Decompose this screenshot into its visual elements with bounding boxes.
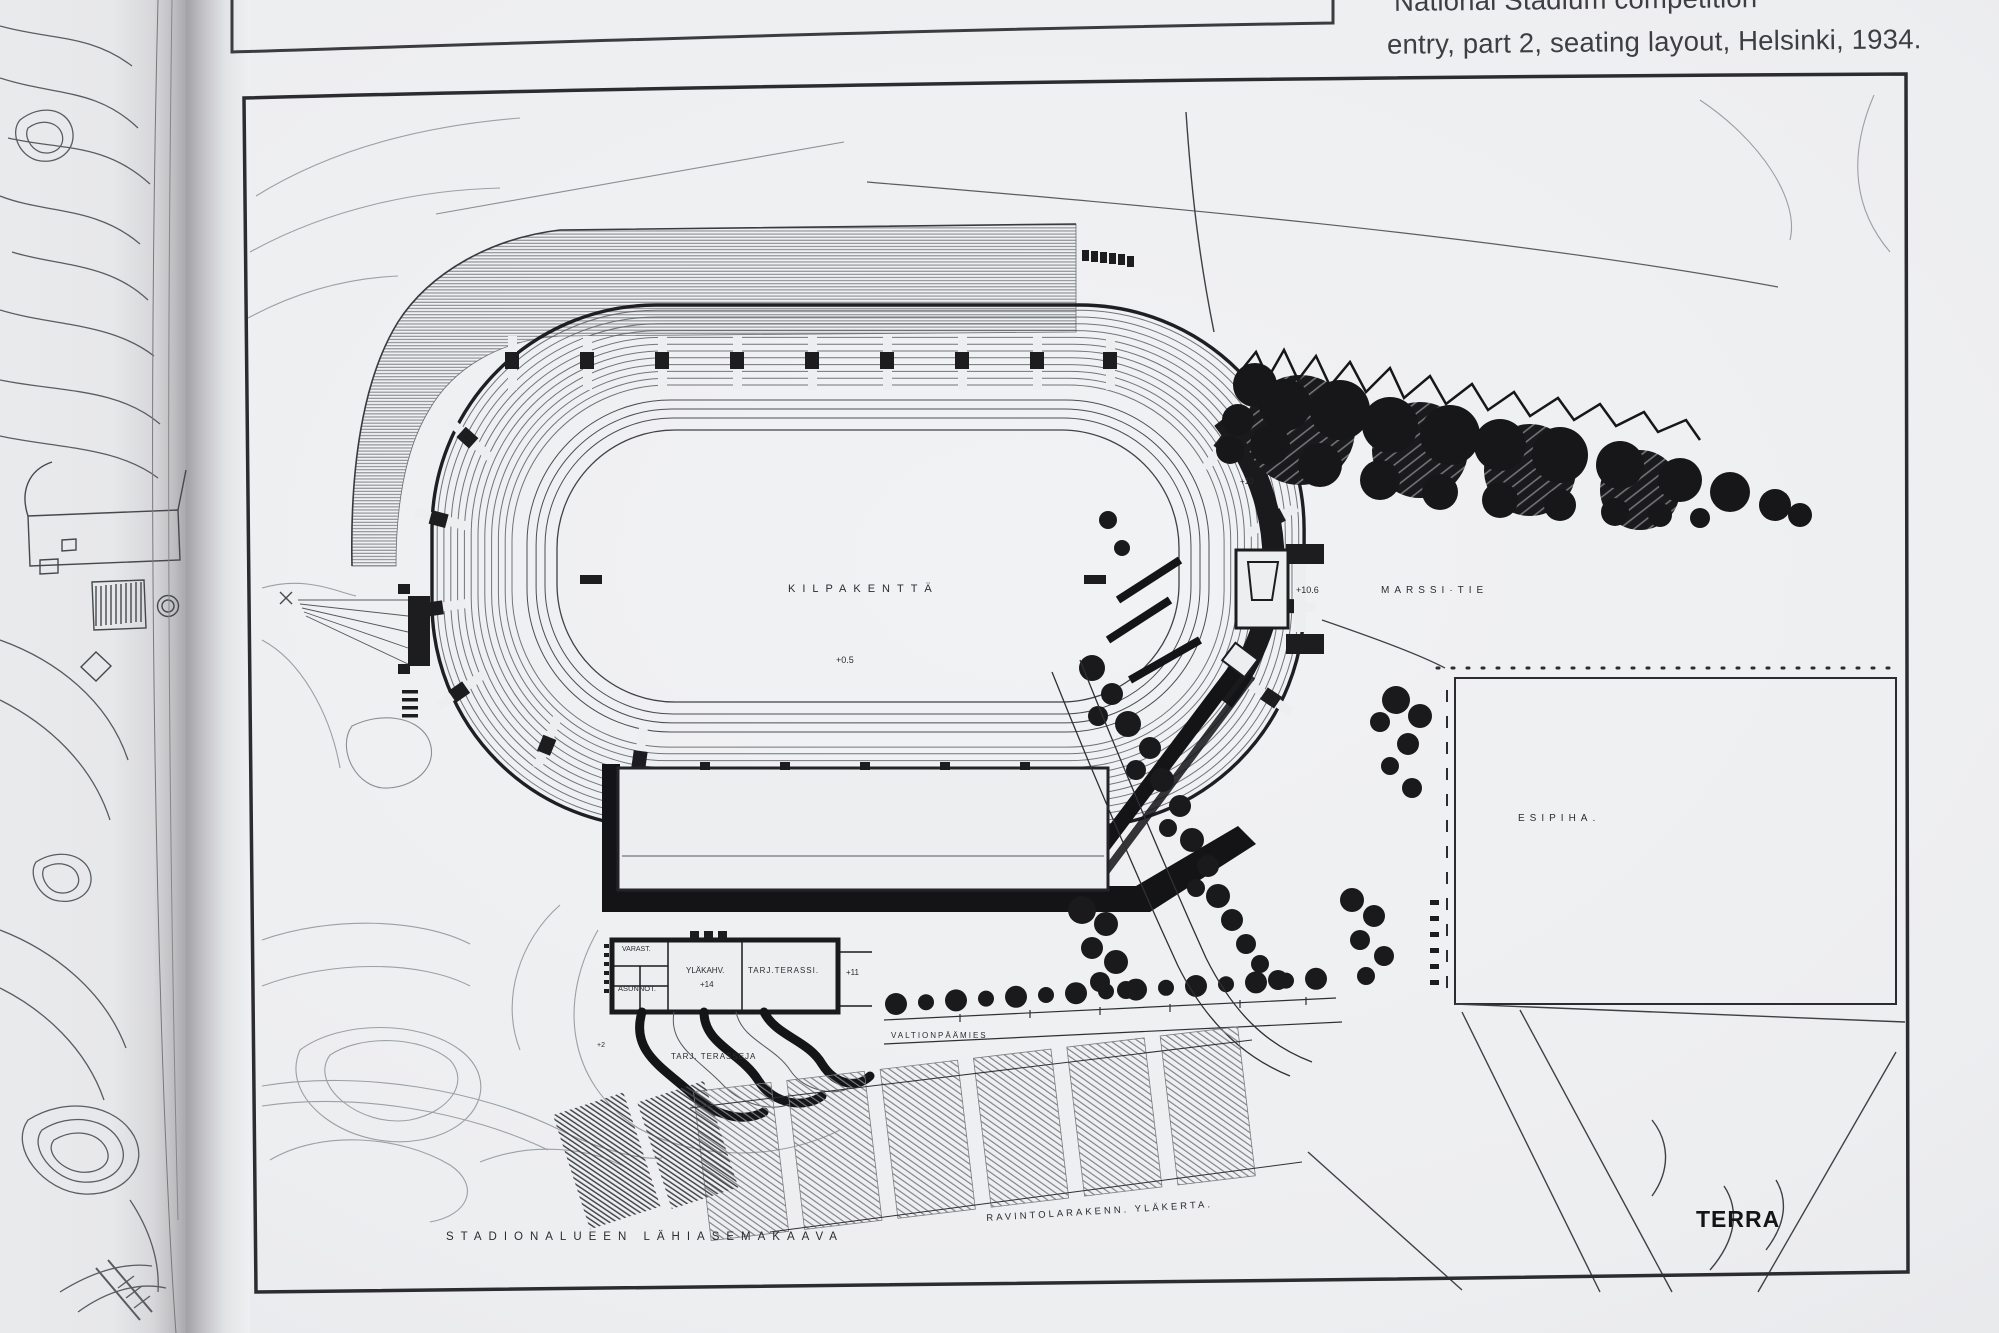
room-upper-cafe-label: YLÄKAHV. [686,966,724,975]
terraces-label: TARJ. TERASSEJA [671,1052,756,1061]
terraces-elevation: +2 [597,1042,605,1049]
room-upper-cafe-elevation: +14 [700,980,714,989]
caption-line-2: entry, part 2, seating layout, Helsinki,… [1387,23,1922,61]
room-terrace-label: TARJ.TERASSI. [748,966,819,975]
road-south-label: VALTIONPÄÄMIES [891,1031,988,1040]
field-elevation: +0.5 [836,655,854,665]
tree-masses [885,350,1812,1015]
drawing-title: STADIONALUEEN LÄHIASEMAKAAVA [446,1231,844,1243]
terrace-elevation: +11 [846,968,859,977]
forecourt-label: ESIPIHA. [1518,813,1600,824]
room-apartments-label: ASUNNOT. [618,984,656,993]
field-label: KILPAKENTTÄ [788,583,939,595]
site-plan-drawing [0,0,1999,1333]
room-storage-label: VARAST. [622,946,651,953]
elevation-plus10: +10 [1240,477,1254,486]
left-page-contour-map [0,0,186,1333]
north-stand-roof-band [352,224,1076,566]
book-photo: National Stadium competition entry, part… [0,0,1999,1333]
architect-signature: TERRA [1696,1206,1780,1233]
service-building [604,931,872,1012]
figure-frames [232,0,1908,1292]
elevation-plus106: +10.6 [1296,585,1319,595]
road-east-label: MARSSI·TIE [1381,585,1488,596]
upper-figure-frame [232,0,1333,52]
